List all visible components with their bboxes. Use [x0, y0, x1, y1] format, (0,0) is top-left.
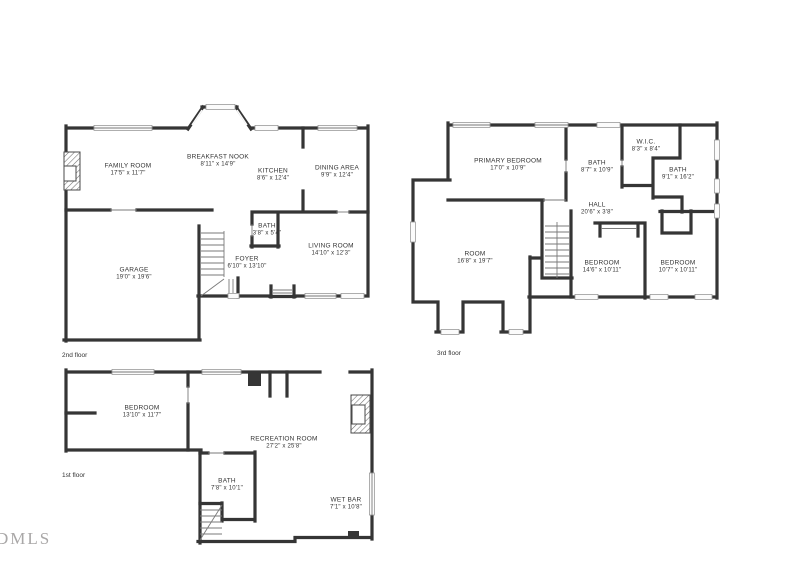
- room-label-bath-right: BATH 9'1" x 16'2": [662, 167, 694, 182]
- room-name: BEDROOM: [659, 260, 698, 268]
- floor-label-3rd: 3rd floor: [437, 350, 461, 357]
- room-name: BATH: [581, 160, 613, 168]
- room-dims: 7'1" x 10'8": [330, 505, 362, 512]
- third-floor-stairs-icon: [545, 222, 570, 278]
- room-name: KITCHEN: [257, 168, 289, 176]
- room-label-garage: GARAGE 19'0" x 19'6": [116, 267, 152, 282]
- second-floor-plan: [64, 104, 368, 341]
- room-label-bedroom-center: BEDROOM 14'6" x 10'11": [583, 260, 622, 275]
- room-label-room: ROOM 16'8" x 19'7": [457, 251, 493, 266]
- room-label-bath-center: BATH 8'7" x 10'9": [581, 160, 613, 175]
- room-label-recreation-room: RECREATION ROOM 27'2" x 25'8": [250, 436, 317, 451]
- room-dims: 14'10" x 12'3": [308, 251, 354, 258]
- room-name: BREAKFAST NOOK: [187, 154, 249, 162]
- room-dims: 8'3" x 8'4": [632, 147, 660, 154]
- room-label-dining-area: DINING AREA 9'9" x 12'4": [315, 165, 359, 180]
- room-dims: 27'2" x 25'8": [250, 444, 317, 451]
- room-dims: 9'1" x 16'2": [662, 175, 694, 182]
- room-label-wet-bar: WET BAR 7'1" x 10'8": [330, 497, 362, 512]
- room-name: FAMILY ROOM: [105, 163, 152, 171]
- room-name: PRIMARY BEDROOM: [474, 158, 542, 166]
- room-label-wic: W.I.C. 8'3" x 8'4": [632, 139, 660, 154]
- room-label-bedroom-1st: BEDROOM 13'10" x 11'7": [123, 405, 162, 420]
- room-name: FOYER: [227, 256, 266, 264]
- third-floor-plan: [410, 122, 719, 334]
- room-dims: 8'7" x 10'9": [581, 168, 613, 175]
- first-floor-plan: [66, 369, 374, 543]
- room-label-bath-1st: BATH 7'8" x 10'1": [211, 478, 243, 493]
- room-dims: 13'10" x 11'7": [123, 413, 162, 420]
- room-name: BATH: [253, 223, 281, 231]
- first-floor-exterior-walls: [66, 370, 372, 543]
- room-label-hall: HALL 20'6" x 3'8": [581, 202, 613, 217]
- room-name: WET BAR: [330, 497, 362, 505]
- room-name: W.I.C.: [632, 139, 660, 147]
- room-dims: 17'0" x 10'9": [474, 166, 542, 173]
- room-dims: 20'6" x 3'8": [581, 210, 613, 217]
- floorplan-drawing: [0, 0, 800, 565]
- room-name: BATH: [211, 478, 243, 486]
- room-name: LIVING ROOM: [308, 243, 354, 251]
- first-floor-stairs-icon: [200, 505, 222, 540]
- first-floor-fireplace-icon: [351, 395, 370, 433]
- second-floor-exterior-walls: [64, 107, 368, 341]
- watermark-dmls: DMLS: [0, 529, 51, 549]
- room-label-living-room: LIVING ROOM 14'10" x 12'3": [308, 243, 354, 258]
- floorplan-page: FAMILY ROOM 17'5" x 11'7" BREAKFAST NOOK…: [0, 0, 800, 565]
- room-name: BATH: [662, 167, 694, 175]
- room-name: DINING AREA: [315, 165, 359, 173]
- second-floor-fireplace-icon: [64, 152, 80, 190]
- room-name: HALL: [581, 202, 613, 210]
- wetbar-post: [348, 531, 359, 538]
- room-name: GARAGE: [116, 267, 152, 275]
- room-name: BEDROOM: [583, 260, 622, 268]
- room-dims: 14'6" x 10'11": [583, 268, 622, 275]
- room-name: ROOM: [457, 251, 493, 259]
- room-dims: 8'6" x 12'4": [257, 176, 289, 183]
- room-label-foyer: FOYER 6'10" x 13'10": [227, 256, 266, 271]
- room-label-bath-2nd: BATH 3'8" x 5'4": [253, 223, 281, 238]
- room-name: RECREATION ROOM: [250, 436, 317, 444]
- floor-label-2nd: 2nd floor: [62, 352, 87, 359]
- room-name: BEDROOM: [123, 405, 162, 413]
- room-label-bedroom-right: BEDROOM 10'7" x 10'11": [659, 260, 698, 275]
- room-label-primary-bedroom: PRIMARY BEDROOM 17'0" x 10'9": [474, 158, 542, 173]
- chimney-block: [248, 373, 261, 386]
- room-dims: 3'8" x 5'4": [253, 231, 281, 238]
- floor-label-1st: 1st floor: [62, 472, 85, 479]
- room-label-kitchen: KITCHEN 8'6" x 12'4": [257, 168, 289, 183]
- room-dims: 7'8" x 10'1": [211, 486, 243, 493]
- room-dims: 19'0" x 19'6": [116, 275, 152, 282]
- room-label-breakfast-nook: BREAKFAST NOOK 8'11" x 14'9": [187, 154, 249, 169]
- room-dims: 6'10" x 13'10": [227, 264, 266, 271]
- first-floor-windows: [112, 369, 374, 515]
- room-label-family-room: FAMILY ROOM 17'5" x 11'7": [105, 163, 152, 178]
- first-floor-door-lines: [188, 386, 225, 453]
- room-dims: 16'8" x 19'7": [457, 259, 493, 266]
- room-dims: 17'5" x 11'7": [105, 171, 152, 178]
- room-dims: 9'9" x 12'4": [315, 173, 359, 180]
- room-dims: 10'7" x 10'11": [659, 268, 698, 275]
- room-dims: 8'11" x 14'9": [187, 162, 249, 169]
